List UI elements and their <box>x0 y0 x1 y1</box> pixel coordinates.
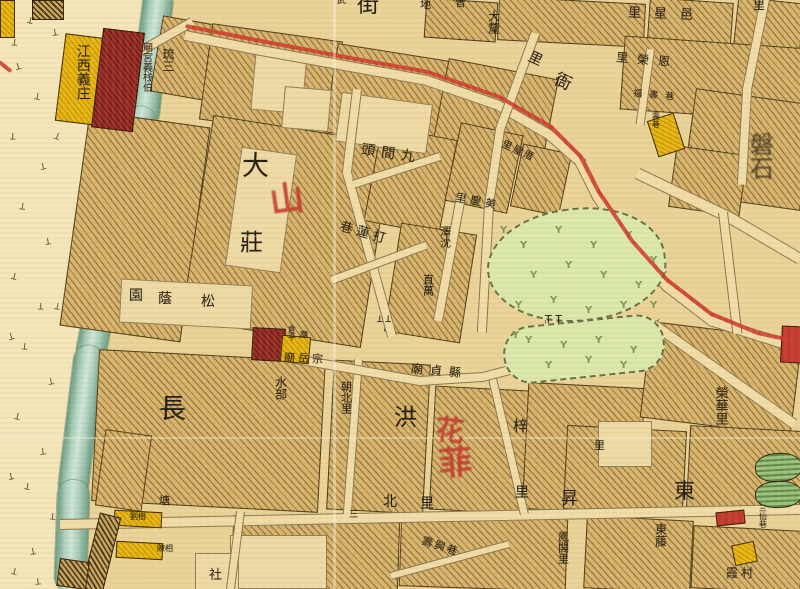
map-label: 社 <box>209 569 222 583</box>
tree-symbol: Y <box>585 355 592 366</box>
map-label: 里 <box>594 440 605 452</box>
map-label: 曾 <box>455 0 466 9</box>
map-label: 地 <box>420 0 431 11</box>
map-label: 塘 <box>159 495 170 507</box>
map-label: 里 <box>420 497 434 512</box>
marsh-symbol: T <box>38 300 44 310</box>
red-building <box>780 325 800 363</box>
map-label: 水部 <box>274 376 287 400</box>
map-label: 琉三 <box>159 48 177 72</box>
marsh-symbol: T <box>39 445 46 456</box>
tree-symbol: Y <box>620 360 627 371</box>
map-label: 三 <box>349 511 358 520</box>
tree-symbol: Y <box>545 360 552 371</box>
tree-symbol: Y <box>595 335 602 346</box>
tree-symbol: Y <box>512 330 519 341</box>
map-label: 昇 <box>561 491 578 509</box>
map-label: 磐石 <box>740 132 778 180</box>
map-label: 倉平 <box>287 325 295 341</box>
tree-symbol: Y <box>565 260 572 271</box>
open-ground <box>230 535 327 589</box>
tree-symbol: Y <box>500 225 507 236</box>
tree-symbol: Y <box>550 295 557 306</box>
marsh-symbol: T <box>12 36 18 46</box>
city-block <box>583 515 694 589</box>
map-label: 梓 <box>513 419 528 435</box>
map-label: 園 <box>129 289 143 304</box>
tree-symbol: Y <box>520 240 527 251</box>
tree-symbol: Y <box>630 345 637 356</box>
map-label: 里 <box>753 0 765 12</box>
street-lane <box>663 282 716 327</box>
marsh-symbol: T <box>10 130 16 140</box>
tree-symbol: Y <box>635 280 642 291</box>
map-label: 松 <box>201 295 215 310</box>
tree-symbol: Y <box>525 335 532 346</box>
marsh-symbol: T <box>35 575 41 585</box>
map-label: 鳳閣里 <box>557 531 569 564</box>
park-area-lower <box>500 312 667 387</box>
yellow-building <box>0 0 15 38</box>
map-label: 里 <box>515 486 529 501</box>
map-label: 東藤 <box>654 523 667 547</box>
tree-symbol: Y <box>515 300 522 311</box>
map-label: 北 <box>383 495 397 510</box>
map-label: T T <box>545 314 562 326</box>
tree-symbol: Y <box>620 300 627 311</box>
marsh-symbol: T <box>50 510 56 520</box>
map-label: 劉樹 <box>130 513 146 521</box>
map-label: 廟 <box>300 331 308 339</box>
map-label: 武 <box>337 0 346 6</box>
map-label: 壽巷 <box>651 112 659 128</box>
tree-symbol: Y <box>590 240 597 251</box>
tree-symbol: Y <box>650 300 657 311</box>
map-label: 里星邑 <box>628 7 706 23</box>
marsh-symbol: T <box>44 235 51 246</box>
map-label: 大 <box>242 153 269 181</box>
tree-symbol: Y <box>560 340 567 351</box>
map-label: 三仙巷 <box>758 504 766 528</box>
dark-building <box>56 558 90 589</box>
open-ground <box>281 86 331 132</box>
map-label: 朝北里 <box>340 381 352 414</box>
map-label: 陳相 <box>157 545 173 553</box>
map-label: T T <box>377 312 391 321</box>
map-label: 莊 <box>240 231 263 255</box>
map-label: 榮華里 <box>710 386 730 425</box>
dark-building <box>32 0 64 20</box>
red-building <box>715 510 745 527</box>
map-root: YYYYYYYYYYYYYYYYYYYYYYYY TTTTTTTTTTTTTTT… <box>0 0 800 589</box>
open-ground <box>119 279 253 330</box>
map-label: 廟岳宗 <box>284 352 327 366</box>
tree-symbol: Y <box>530 270 537 281</box>
map-label: 長 <box>159 396 186 424</box>
map-label: 蔭 <box>158 292 172 307</box>
marsh-symbol: T <box>21 340 28 351</box>
street-lane <box>726 212 800 264</box>
tree-symbol: Y <box>555 225 562 236</box>
map-label: 直萬 <box>422 274 434 296</box>
pond <box>754 452 800 483</box>
map-label: 洪 <box>394 406 417 430</box>
red-script-mark: 菲 <box>438 445 473 482</box>
tree-symbol: Y <box>585 305 592 316</box>
map-label: 澤沈 <box>439 226 451 248</box>
map-label: 大釐 <box>487 10 500 34</box>
map-label: 廟宮義栈伯 <box>140 42 151 92</box>
red-script-mark: 山 <box>268 181 307 221</box>
map-label: 街 <box>357 0 379 17</box>
map-label: 東 <box>674 480 695 502</box>
tree-symbol: Y <box>600 270 607 281</box>
map-label: 江西義庄 <box>74 44 91 100</box>
park-area <box>480 196 673 334</box>
open-ground <box>598 421 652 467</box>
map-label: 霞村 <box>726 567 756 580</box>
